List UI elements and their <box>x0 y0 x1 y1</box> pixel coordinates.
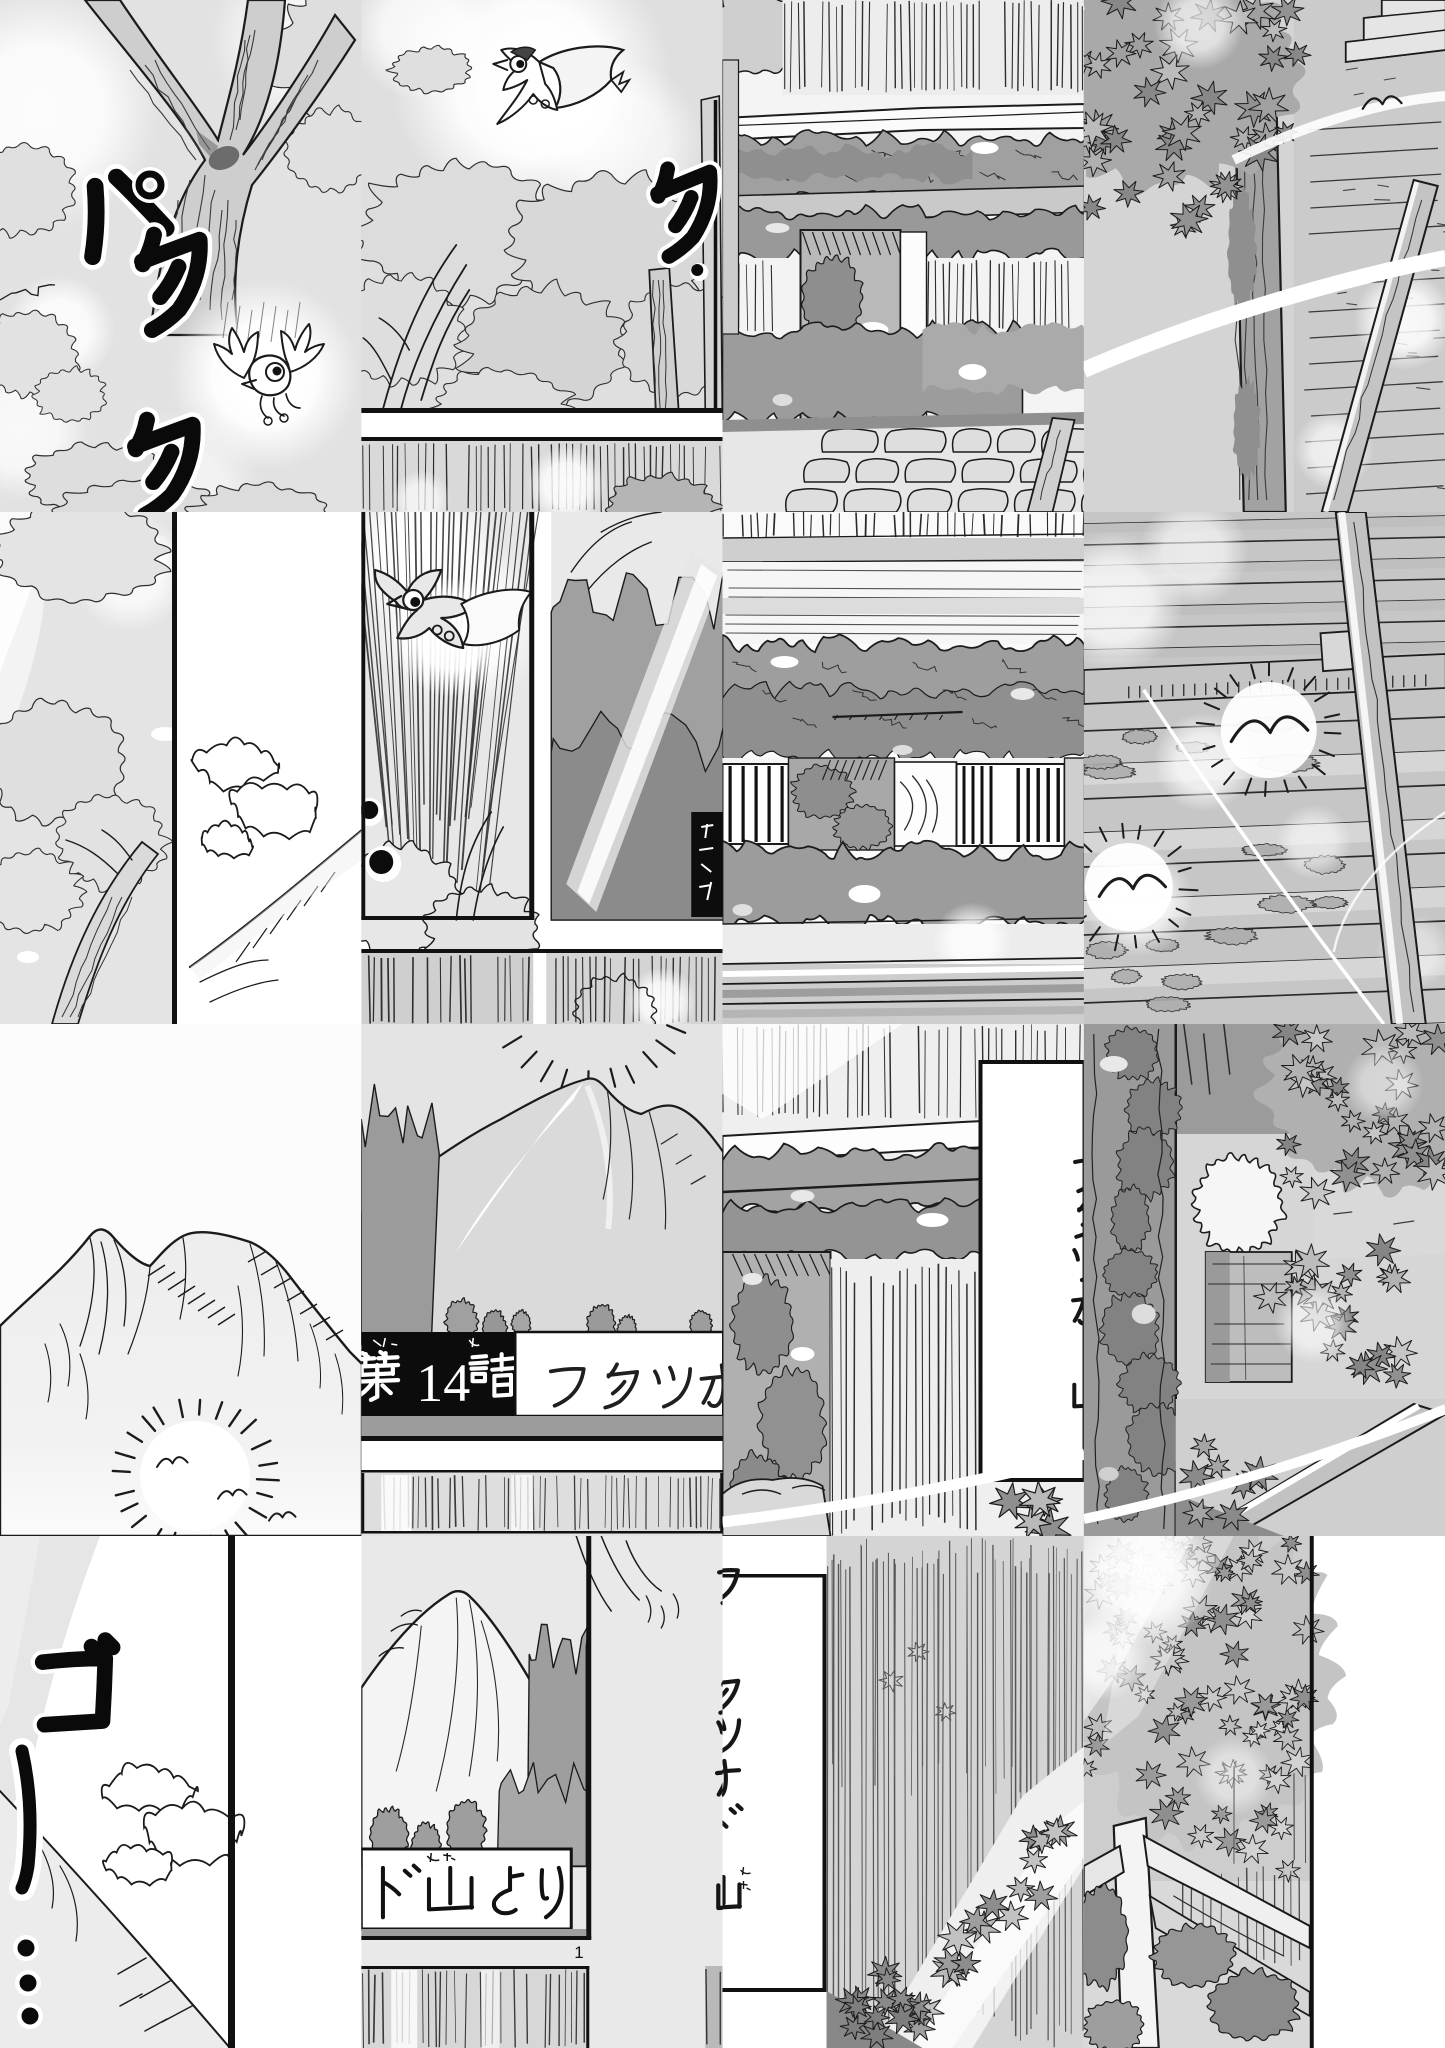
svg-text:14: 14 <box>416 1353 470 1413</box>
svg-text:1: 1 <box>574 1943 583 1962</box>
